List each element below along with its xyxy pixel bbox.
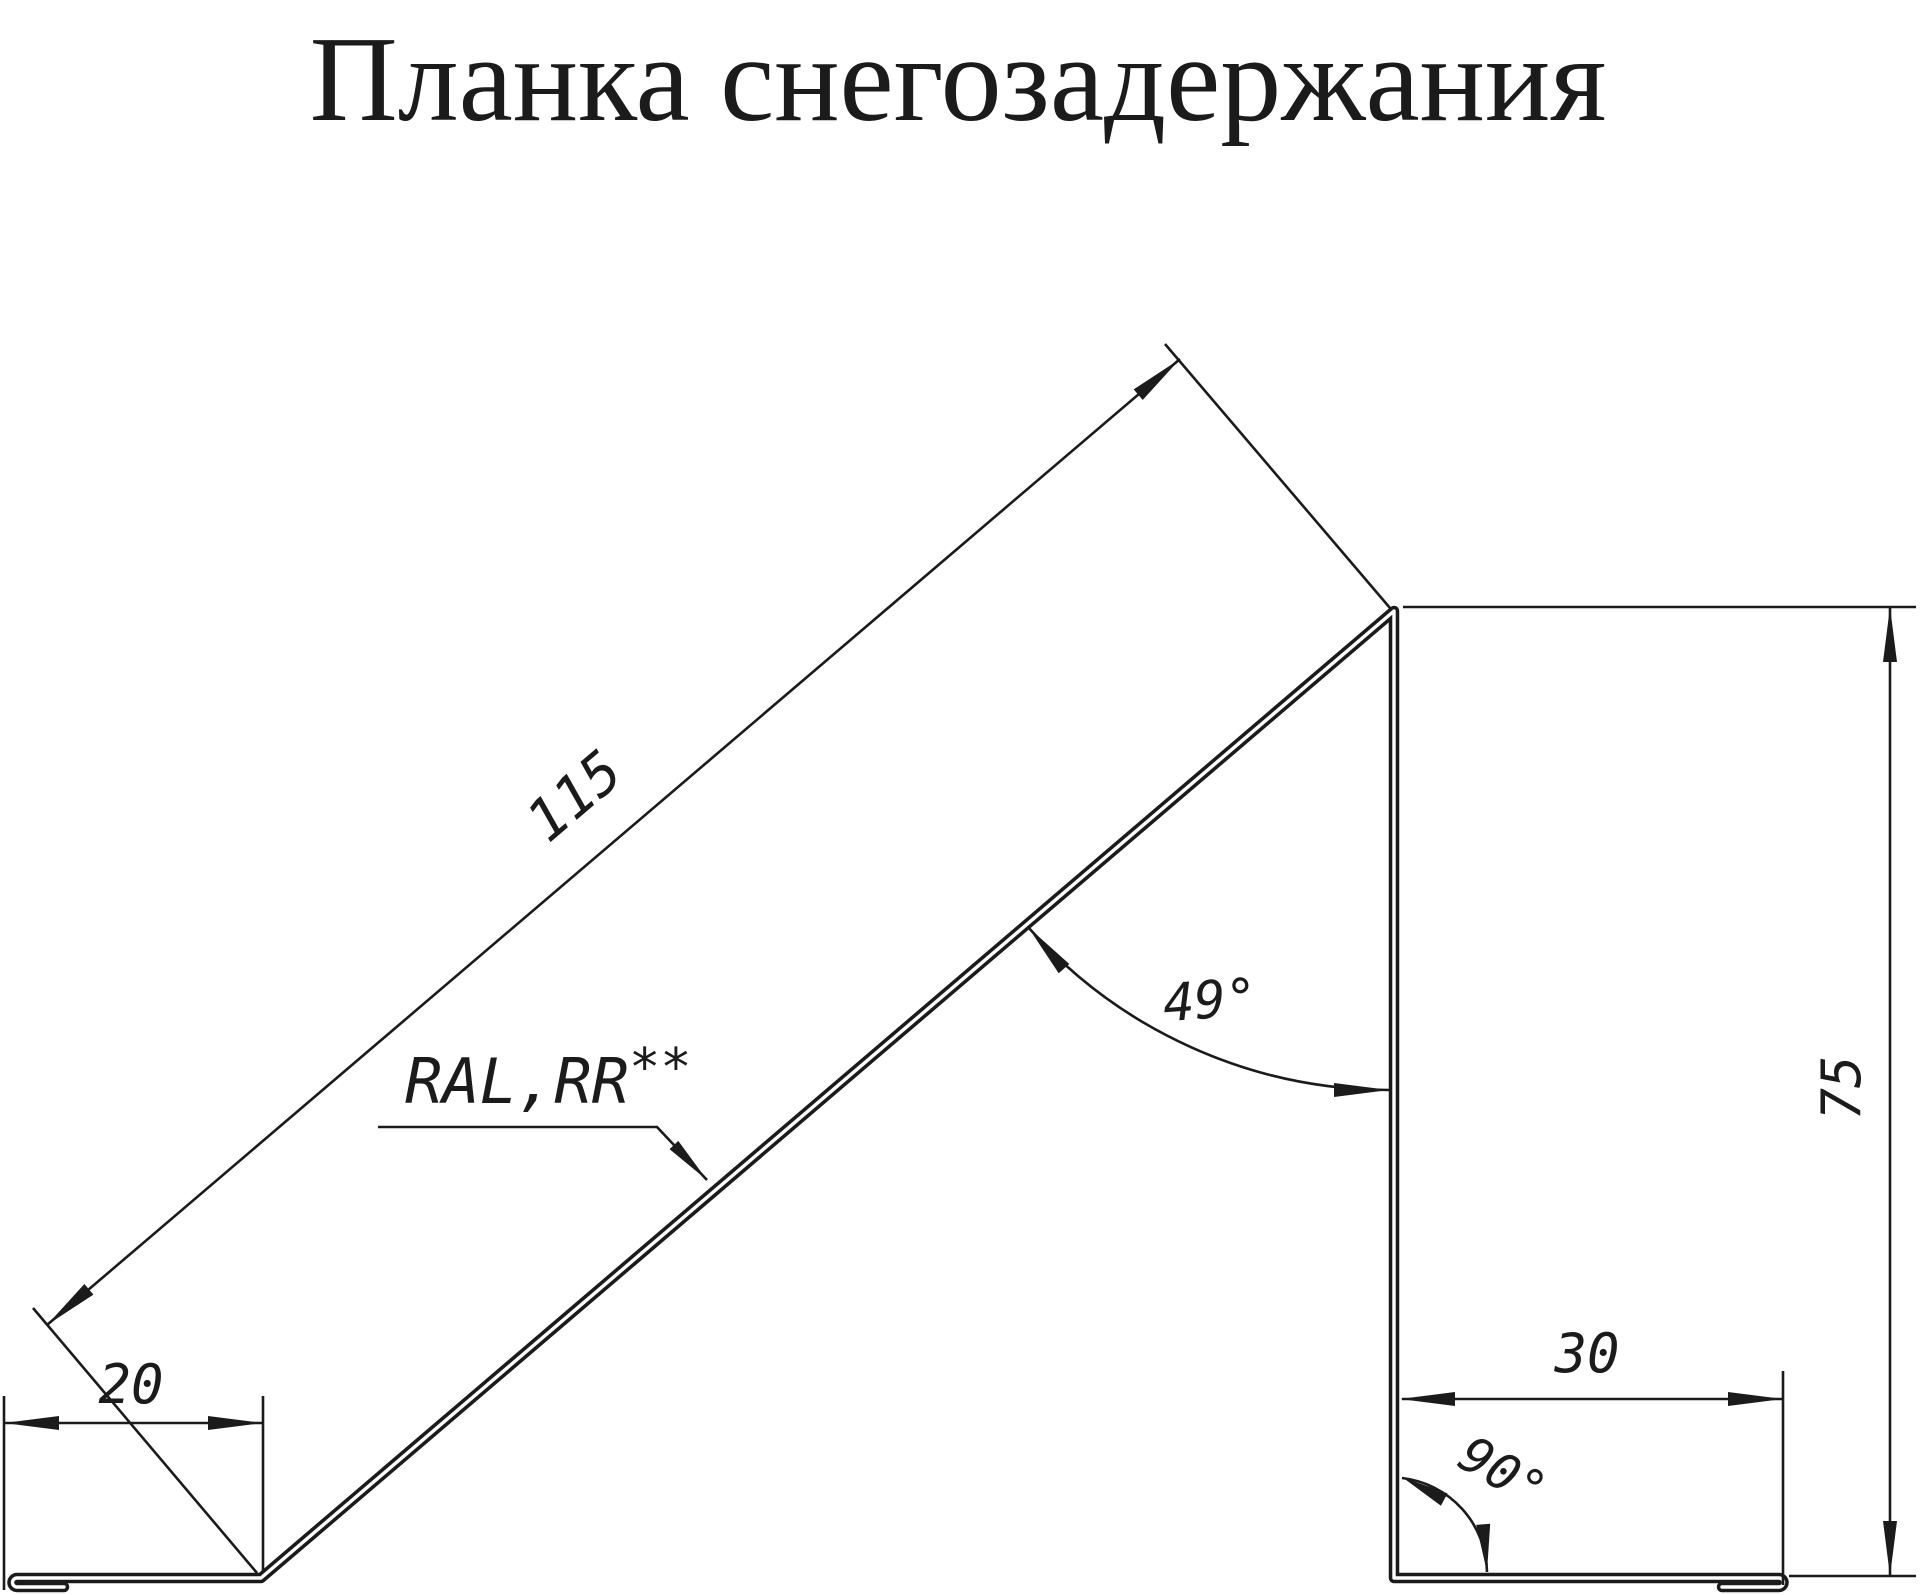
arrowhead-20-right bbox=[208, 1416, 263, 1430]
leader-line bbox=[378, 1127, 707, 1180]
profile-outline bbox=[13, 611, 1784, 1587]
arrowhead-49-leg bbox=[1334, 1083, 1389, 1097]
material-leader: RAL,RR** bbox=[378, 1038, 707, 1180]
arrowhead-30-left bbox=[1400, 1392, 1455, 1406]
arrowhead-115-top bbox=[1134, 359, 1180, 400]
dim-label-20: 20 bbox=[98, 1353, 163, 1416]
arrowhead-90-leg bbox=[1402, 1477, 1448, 1506]
ext-line-115-top bbox=[1165, 344, 1390, 608]
arrowhead-75-top bbox=[1883, 607, 1897, 662]
dim-label-75: 75 bbox=[1810, 1055, 1873, 1120]
dim-line-115 bbox=[47, 359, 1180, 1325]
dimension-bottom-flange: 30 bbox=[1400, 1322, 1783, 1585]
arrowhead-49-slope bbox=[1028, 927, 1069, 973]
dim-label-90: 90° bbox=[1449, 1425, 1556, 1520]
material-note: RAL,RR** bbox=[405, 1038, 692, 1118]
dimension-bend-angle: 49° bbox=[1028, 927, 1389, 1097]
arrowhead-20-left bbox=[4, 1416, 59, 1430]
material-note-text: RAL,RR bbox=[405, 1045, 629, 1118]
drawing-page: Планка снегозадержания 115 20 bbox=[0, 0, 1920, 1595]
arc-90 bbox=[1402, 1478, 1487, 1572]
arrowhead-90-base bbox=[1476, 1524, 1490, 1572]
arrowhead-75-bottom bbox=[1883, 1521, 1897, 1576]
dimension-right-angle: 90° bbox=[1402, 1425, 1556, 1572]
profile-metal-core bbox=[13, 611, 1784, 1587]
arrowhead-115-bottom bbox=[47, 1284, 93, 1325]
dimension-slope-length: 115 bbox=[33, 344, 1390, 1573]
dim-label-30: 30 bbox=[1553, 1322, 1619, 1385]
arrowhead-leader bbox=[670, 1141, 708, 1180]
arrowhead-30-right bbox=[1728, 1392, 1783, 1406]
drawing-title: Планка снегозадержания bbox=[310, 12, 1607, 147]
profile-metal-stroke bbox=[13, 611, 1784, 1587]
dim-label-49: 49° bbox=[1161, 968, 1259, 1034]
drawing-canvas: Планка снегозадержания 115 20 bbox=[0, 0, 1920, 1595]
material-note-superscript: ** bbox=[629, 1038, 692, 1098]
dimension-left-flange: 20 bbox=[4, 1353, 263, 1590]
ext-line-115-bottom bbox=[33, 1308, 257, 1573]
